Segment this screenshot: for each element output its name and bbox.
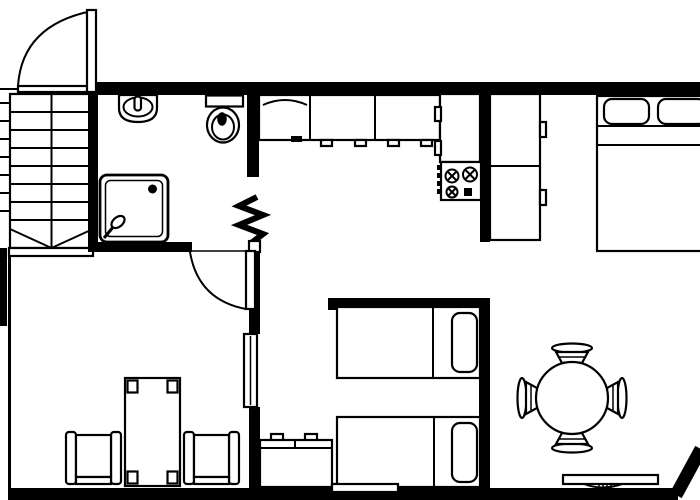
entrance	[0, 10, 96, 92]
stair-base-strip	[9, 248, 93, 256]
armrest	[229, 432, 239, 484]
top-wall	[96, 82, 700, 95]
entrance-door-swing-arc	[18, 11, 92, 86]
single-bed-upper	[337, 307, 480, 378]
single-bed-lower	[337, 417, 480, 487]
kitchen-closet-wall	[480, 92, 490, 242]
corner-pad	[128, 472, 138, 484]
bathroom	[88, 92, 259, 252]
bathroom-bottom-wall	[88, 242, 192, 252]
stove-burner-solid	[464, 188, 472, 196]
armrest	[111, 432, 121, 484]
toilet-water-mark	[217, 112, 227, 126]
dresser	[260, 434, 332, 487]
dining-area	[518, 344, 659, 489]
floor-plan-drawing	[0, 0, 700, 500]
pillow	[452, 423, 477, 482]
kitchen-tall-cabinet	[440, 94, 480, 162]
kitchen-counter	[259, 95, 440, 140]
tv-shelf-top	[563, 475, 658, 484]
pillow	[452, 313, 477, 372]
armchair-left	[66, 432, 121, 484]
closet-wardrobe	[490, 94, 546, 240]
zigzag-break-symbol	[239, 197, 263, 244]
sink-unit-handle	[291, 136, 302, 142]
living-room	[66, 378, 239, 486]
dining-chair-right	[607, 378, 627, 418]
shower	[100, 175, 168, 242]
floor-plan-canvas	[0, 0, 700, 500]
tall-cabinet-handle-2	[435, 141, 441, 155]
toilet	[206, 96, 243, 143]
armrest	[184, 432, 194, 484]
armrest	[66, 432, 76, 484]
bathroom-right-wall	[247, 95, 259, 177]
armchair-right	[184, 432, 239, 484]
bathroom-left-wall	[88, 92, 98, 252]
bedroom-double	[597, 96, 700, 251]
seat	[194, 435, 229, 477]
kitchen	[259, 92, 546, 242]
stair-side-ticks	[0, 103, 9, 211]
corner-pad	[168, 381, 178, 393]
entrance-threshold	[18, 86, 88, 92]
table-top	[125, 378, 180, 486]
sink	[119, 95, 157, 122]
stove	[437, 162, 481, 200]
corner-pad	[168, 472, 178, 484]
shower-drain	[148, 185, 157, 194]
dining-chair-left	[518, 378, 538, 418]
backrest	[76, 477, 111, 484]
toilet-tank	[206, 96, 243, 107]
bathroom-door-swing-arc	[190, 252, 246, 309]
wardrobe-handle-1	[540, 122, 546, 137]
tv-shelf	[563, 475, 658, 488]
corner-pad	[128, 381, 138, 393]
pillow-right	[658, 99, 700, 124]
entrance-door-leaf	[87, 10, 96, 92]
left-wall-stub	[0, 248, 7, 326]
wardrobe-handle-2	[540, 190, 546, 205]
backrest	[194, 477, 229, 484]
angled-corner-wall	[676, 449, 700, 495]
central-wall-lower	[249, 407, 260, 495]
threshold-strip	[332, 484, 398, 492]
tall-cabinet-handle-1	[435, 107, 441, 121]
bathroom-door-leaf	[246, 251, 255, 309]
pillow-left	[604, 99, 649, 124]
dining-chair-top	[552, 344, 592, 364]
dining-chair-bottom	[552, 433, 592, 453]
bedroom-twin	[260, 298, 490, 495]
seat	[76, 435, 111, 477]
round-dining-table	[536, 362, 608, 434]
sink-tap	[135, 97, 142, 111]
coffee-table	[125, 378, 180, 486]
staircase	[0, 94, 93, 256]
